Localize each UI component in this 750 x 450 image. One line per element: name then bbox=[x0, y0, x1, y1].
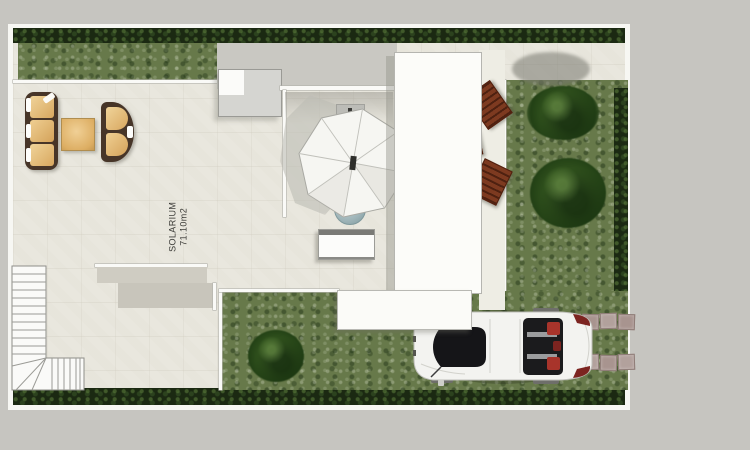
stepping-stone bbox=[600, 355, 618, 372]
skylight bbox=[218, 69, 282, 117]
chair-pad bbox=[127, 126, 133, 138]
room-name: SOLARIUM bbox=[167, 202, 178, 252]
sunbed bbox=[318, 229, 375, 260]
upper-garden bbox=[18, 43, 217, 81]
terrace-edge-line bbox=[13, 80, 218, 83]
lower-garden-edge-v bbox=[219, 291, 222, 390]
garden-tree-2 bbox=[530, 158, 606, 228]
stepping-stone bbox=[600, 313, 618, 330]
stepping-stone bbox=[618, 354, 636, 371]
sofa bbox=[25, 92, 58, 170]
chair-cushion bbox=[106, 133, 128, 156]
skylight-glass bbox=[219, 70, 244, 95]
site-plan: SOLARIUM 71.10m2 bbox=[0, 0, 750, 450]
room-area: 71.10m2 bbox=[178, 202, 189, 252]
sofa-armrest-pad bbox=[26, 124, 31, 138]
step-lower bbox=[118, 283, 216, 308]
sofa-armrest-pad bbox=[26, 148, 31, 162]
sofa-armrest-pad bbox=[26, 98, 31, 112]
sofa-cushion bbox=[30, 120, 54, 142]
chair-cushion bbox=[106, 107, 128, 130]
room-label: SOLARIUM 71.10m2 bbox=[143, 193, 213, 261]
stepping-stone bbox=[618, 314, 636, 331]
side-hedge bbox=[614, 88, 628, 310]
top-hedge bbox=[13, 28, 625, 43]
step-edge-line-2 bbox=[213, 283, 216, 310]
lower-garden-edge-h bbox=[219, 289, 339, 292]
tree-shadow bbox=[512, 52, 590, 86]
porch-roof bbox=[394, 52, 482, 294]
sunbed-headrest bbox=[319, 230, 374, 235]
garden-tree-1 bbox=[527, 86, 599, 140]
step-upper bbox=[97, 267, 207, 283]
sunbed-footrest bbox=[319, 257, 374, 259]
bottom-hedge bbox=[13, 388, 625, 405]
entry-roof bbox=[337, 290, 472, 330]
wall-line-north bbox=[280, 86, 396, 90]
sofa-cushion bbox=[30, 144, 54, 166]
staircase bbox=[10, 262, 90, 396]
coffee-table bbox=[61, 118, 95, 151]
garden-shrub bbox=[248, 330, 304, 382]
